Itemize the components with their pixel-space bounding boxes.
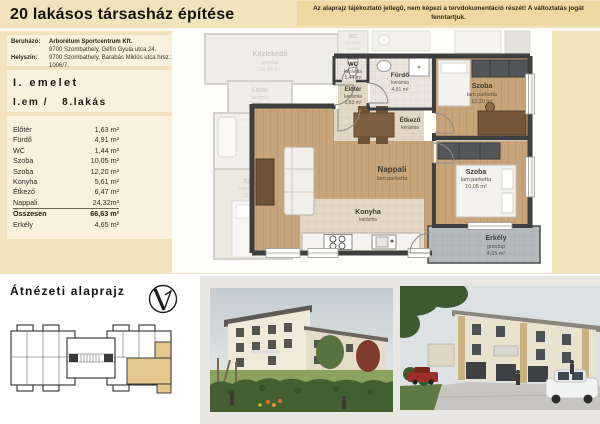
svg-text:WC: WC (348, 62, 359, 68)
room-area: 1,63 m² (95, 125, 119, 134)
upper-wardrobe (505, 31, 530, 53)
svg-text:1,44 m²: 1,44 m² (346, 46, 361, 51)
shower-drain (418, 66, 421, 69)
room-name: Szoba (13, 156, 33, 165)
room-area: 5,61 m² (95, 177, 119, 186)
washbasin (377, 61, 391, 72)
flat-text: 8.lakás (62, 97, 107, 108)
render-photo-street (400, 286, 600, 410)
svg-text:kerámia: kerámia (251, 95, 269, 101)
site-row: Helyszín: 9700 Szombathely, Barabás Mikl… (11, 55, 191, 70)
floor-label: I. emelet (13, 77, 191, 89)
room-area: 12,20 m² (91, 167, 119, 176)
area-row: Konyha5,61 m² (13, 177, 119, 187)
sideboard (256, 159, 274, 205)
balcony-area: 4,65 m² (95, 220, 119, 229)
balcony-name: Erkély (13, 220, 33, 229)
room-name: Fürdő (13, 135, 32, 144)
area-table-box: Előtér1,63 m² Fürdő4,91 m² WC1,44 m² Szo… (7, 116, 191, 239)
area-row: Előtér1,63 m² (13, 125, 119, 135)
pillow (502, 169, 513, 189)
neighbor-corridor (205, 34, 338, 84)
stove (324, 235, 352, 250)
area-row: Szoba10,05 m² (13, 156, 119, 166)
disclaimer-box: Az alaprajz tájékoztató jellegű, nem kép… (297, 1, 600, 26)
svg-text:Erkély: Erkély (485, 235, 506, 242)
disclaimer-text: Az alaprajz tájékoztató jellegű, nem kép… (303, 5, 594, 22)
svg-text:Fürdő: Fürdő (391, 72, 409, 79)
upper-basin (378, 35, 390, 45)
flat-label: I.em /8.lakás (13, 97, 191, 108)
svg-text:kerámia: kerámia (359, 217, 377, 223)
pillow (502, 193, 513, 213)
north-arrow-icon (146, 281, 180, 317)
room-name: Konyha (13, 177, 37, 186)
developer-address: 9700 Szombathely, Géfin Gyula utca 24. (49, 47, 156, 53)
level-text: I.em / (13, 97, 48, 108)
red-tree (356, 340, 380, 372)
balcony (428, 226, 540, 263)
balcony-rail (250, 350, 280, 354)
wardrobe-bedroom1 (472, 60, 528, 77)
total-area: 66,63 m² (90, 209, 119, 218)
total-name: Összesen (13, 209, 47, 218)
svg-text:10,05 m²: 10,05 m² (465, 184, 487, 190)
project-info-box: Beruházó: Arborétum Sportcentrum Kft. 97… (7, 35, 191, 66)
balcony (494, 346, 518, 356)
stone-pilaster (458, 316, 465, 380)
page-title: 20 lakásos társasház építése (10, 6, 234, 24)
upper-bed (455, 31, 501, 53)
overview-heading: Átnézeti alaprajz (10, 284, 125, 298)
room-name: Étkező (13, 187, 35, 196)
hedge (210, 378, 393, 412)
room-area: 1,44 m² (95, 146, 119, 155)
svg-text:Közlekedő: Közlekedő (252, 51, 287, 58)
faucet (391, 240, 394, 243)
room-name: Előtér (13, 125, 32, 134)
far-house (428, 344, 454, 366)
svg-text:greslap: greslap (487, 244, 505, 250)
area-table: Előtér1,63 m² Fürdő4,91 m² WC1,44 m² Szo… (13, 125, 119, 230)
area-row-nappali: Nappali24,32m² (13, 198, 119, 209)
overview-miniplan (6, 316, 178, 402)
neighbor-bathtub (218, 117, 236, 157)
site-label: Helyszín: (11, 55, 49, 70)
flyer-page: 20 lakásos társasház építése Az alaprajz… (0, 0, 600, 424)
svg-text:1,63 m²: 1,63 m² (345, 100, 362, 106)
svg-text:lam.parketta: lam.parketta (467, 92, 498, 98)
area-row: Étkező6,47 m² (13, 187, 119, 197)
stone-pilaster (520, 323, 527, 383)
floorplan-drawing: Közlekedő greslap 16,46 m² Előtér kerámi… (172, 29, 552, 273)
wardrobe-bedroom2 (438, 143, 500, 159)
svg-text:Előtér: Előtér (251, 88, 269, 94)
svg-text:16,46 m²: 16,46 m² (259, 67, 281, 73)
svg-text:kerámia: kerámia (345, 40, 361, 45)
svg-text:4,65 m²: 4,65 m² (487, 251, 506, 257)
site-address: 9700 Szombathely, Barabás Miklós utca hr… (49, 55, 191, 70)
room-area: 24,32m² (93, 198, 119, 207)
sink-bowl (376, 237, 388, 247)
svg-text:Nappali: Nappali (378, 165, 407, 174)
svg-text:12,20 m²: 12,20 m² (471, 99, 493, 105)
svg-text:Szoba: Szoba (472, 83, 493, 90)
desk (478, 111, 526, 135)
svg-text:1,44 m²: 1,44 m² (345, 75, 362, 81)
developer-label: Beruházó: (11, 39, 49, 54)
unit-box: I. emelet I.em /8.lakás (7, 70, 191, 112)
area-row: Fürdő4,91 m² (13, 135, 119, 145)
svg-text:lam.parketta: lam.parketta (461, 177, 492, 183)
chair (376, 137, 388, 144)
dining-table (354, 113, 394, 137)
area-row-total: Összesen66,63 m² (13, 209, 119, 219)
developer-value: Arborétum Sportcentrum Kft. 9700 Szombat… (49, 39, 156, 54)
svg-text:greslap: greslap (261, 60, 279, 66)
developer-name: Arborétum Sportcentrum Kft. (49, 39, 132, 45)
area-row: Szoba12,20 m² (13, 167, 119, 177)
room-name: Nappali (13, 198, 37, 207)
svg-text:4,91 m²: 4,91 m² (392, 87, 409, 93)
room-area: 6,47 m² (95, 187, 119, 196)
developer-row: Beruházó: Arborétum Sportcentrum Kft. 97… (11, 39, 191, 54)
chair (358, 137, 370, 144)
render-photo-garden (210, 288, 393, 412)
room-name: WC (13, 146, 25, 155)
room-area: 10,05 m² (91, 156, 119, 165)
sofa (284, 147, 314, 215)
svg-text:Szoba: Szoba (466, 169, 487, 176)
svg-text:kerámia: kerámia (401, 125, 419, 131)
svg-text:kerámia: kerámia (391, 80, 409, 86)
svg-text:Konyha: Konyha (355, 209, 381, 216)
svg-text:lam.parketta: lam.parketta (377, 176, 408, 182)
area-row-balcony: Erkély4,65 m² (13, 220, 119, 230)
area-row: WC1,44 m² (13, 146, 119, 156)
pillow (441, 63, 467, 73)
room-name: Szoba (13, 167, 33, 176)
room-area: 4,91 m² (95, 135, 119, 144)
svg-text:Előtér: Előtér (344, 87, 362, 93)
tree (316, 335, 344, 369)
floorplan-panel: Közlekedő greslap 16,46 m² Előtér kerámi… (172, 29, 552, 273)
svg-text:Étkező: Étkező (400, 115, 421, 124)
